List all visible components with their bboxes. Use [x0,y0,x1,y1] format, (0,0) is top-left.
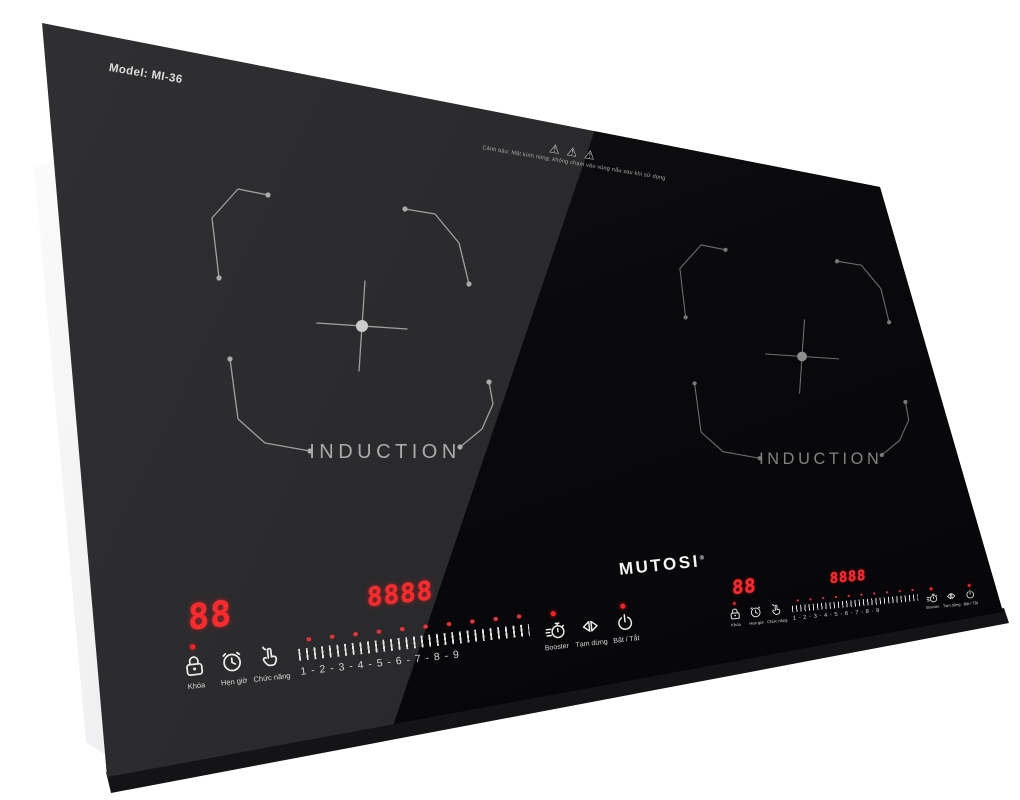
zone-corner-bottom-right [882,402,909,455]
timer-button[interactable]: Hẹn giờ [745,599,766,626]
glass-cooktop-surface: Model: MI-36 ⚠⚠⚠ Cảnh báo: Mặt kính nóng… [0,0,1020,800]
zone-corner-top-right [837,261,889,322]
zone-center-dot [797,352,807,362]
lock-indicator-led [189,644,195,650]
touch-hand-icon [255,643,284,672]
booster-indicator-led [930,587,933,590]
zone-corner-top-right [405,209,469,284]
lock-button[interactable]: Khóa [725,601,746,628]
timer-icon [748,604,763,619]
booster-button[interactable]: Booster [538,610,573,653]
zone-corner-bottom-right [460,382,493,447]
model-number-label: Model: MI-36 [108,62,183,86]
zone-corner-bottom-left [230,359,310,451]
power-icon [963,588,976,601]
induction-label-right: INDUCTION [759,450,882,468]
registered-mark: ® [699,555,704,561]
touch-hand-icon [769,602,784,617]
function-button[interactable]: Chức năng [251,634,290,683]
timer-display-right: 88 [732,577,756,598]
zone-center-dot [356,320,368,332]
electric-warning-icon: ⚠ [583,147,603,164]
power-indicator-led [620,603,626,609]
product-photo-induction-cooktop: Model: MI-36 ⚠⚠⚠ Cảnh báo: Mặt kính nóng… [0,0,1020,800]
lock-label: Khóa [187,680,205,691]
zone-corner-top-left [212,189,268,278]
lock-button[interactable]: Khóa [175,643,214,692]
power-button[interactable]: Bật / Tắt [607,602,642,645]
power-display-right: 8888 [830,568,866,586]
power-icon [612,610,636,634]
booster-button[interactable]: Booster [923,587,942,610]
lock-indicator-led [733,602,736,605]
pause-icon [944,590,957,603]
timer-icon [218,647,247,676]
cooking-zone-right: INDUCTION [662,226,916,469]
lock-icon [180,651,209,680]
booster-indicator-led [550,611,556,617]
pause-button[interactable]: Tạm dừng [942,585,961,608]
booster-icon [925,591,938,604]
lock-label: Khóa [731,622,741,628]
cooking-zone-left: INDUCTION [190,166,502,464]
timer-button[interactable]: Hẹn giờ [213,638,252,687]
timer-display-left: 88 [188,597,233,637]
timer-label: Hẹn giờ [220,676,247,688]
function-label: Chức năng [253,671,291,684]
power-indicator-led [968,584,971,587]
induction-label-left: INDUCTION [309,441,461,463]
pause-button[interactable]: Tạm dừng [572,606,607,649]
zone-corner-bottom-left [695,383,760,458]
lock-icon [727,606,742,621]
power-button[interactable]: Bật / Tắt [961,583,980,606]
zone-corner-top-left [680,245,726,317]
booster-icon [543,618,567,642]
power-display-left: 8888 [367,578,434,611]
pause-icon [578,614,602,638]
function-button[interactable]: Chức năng [766,598,787,625]
